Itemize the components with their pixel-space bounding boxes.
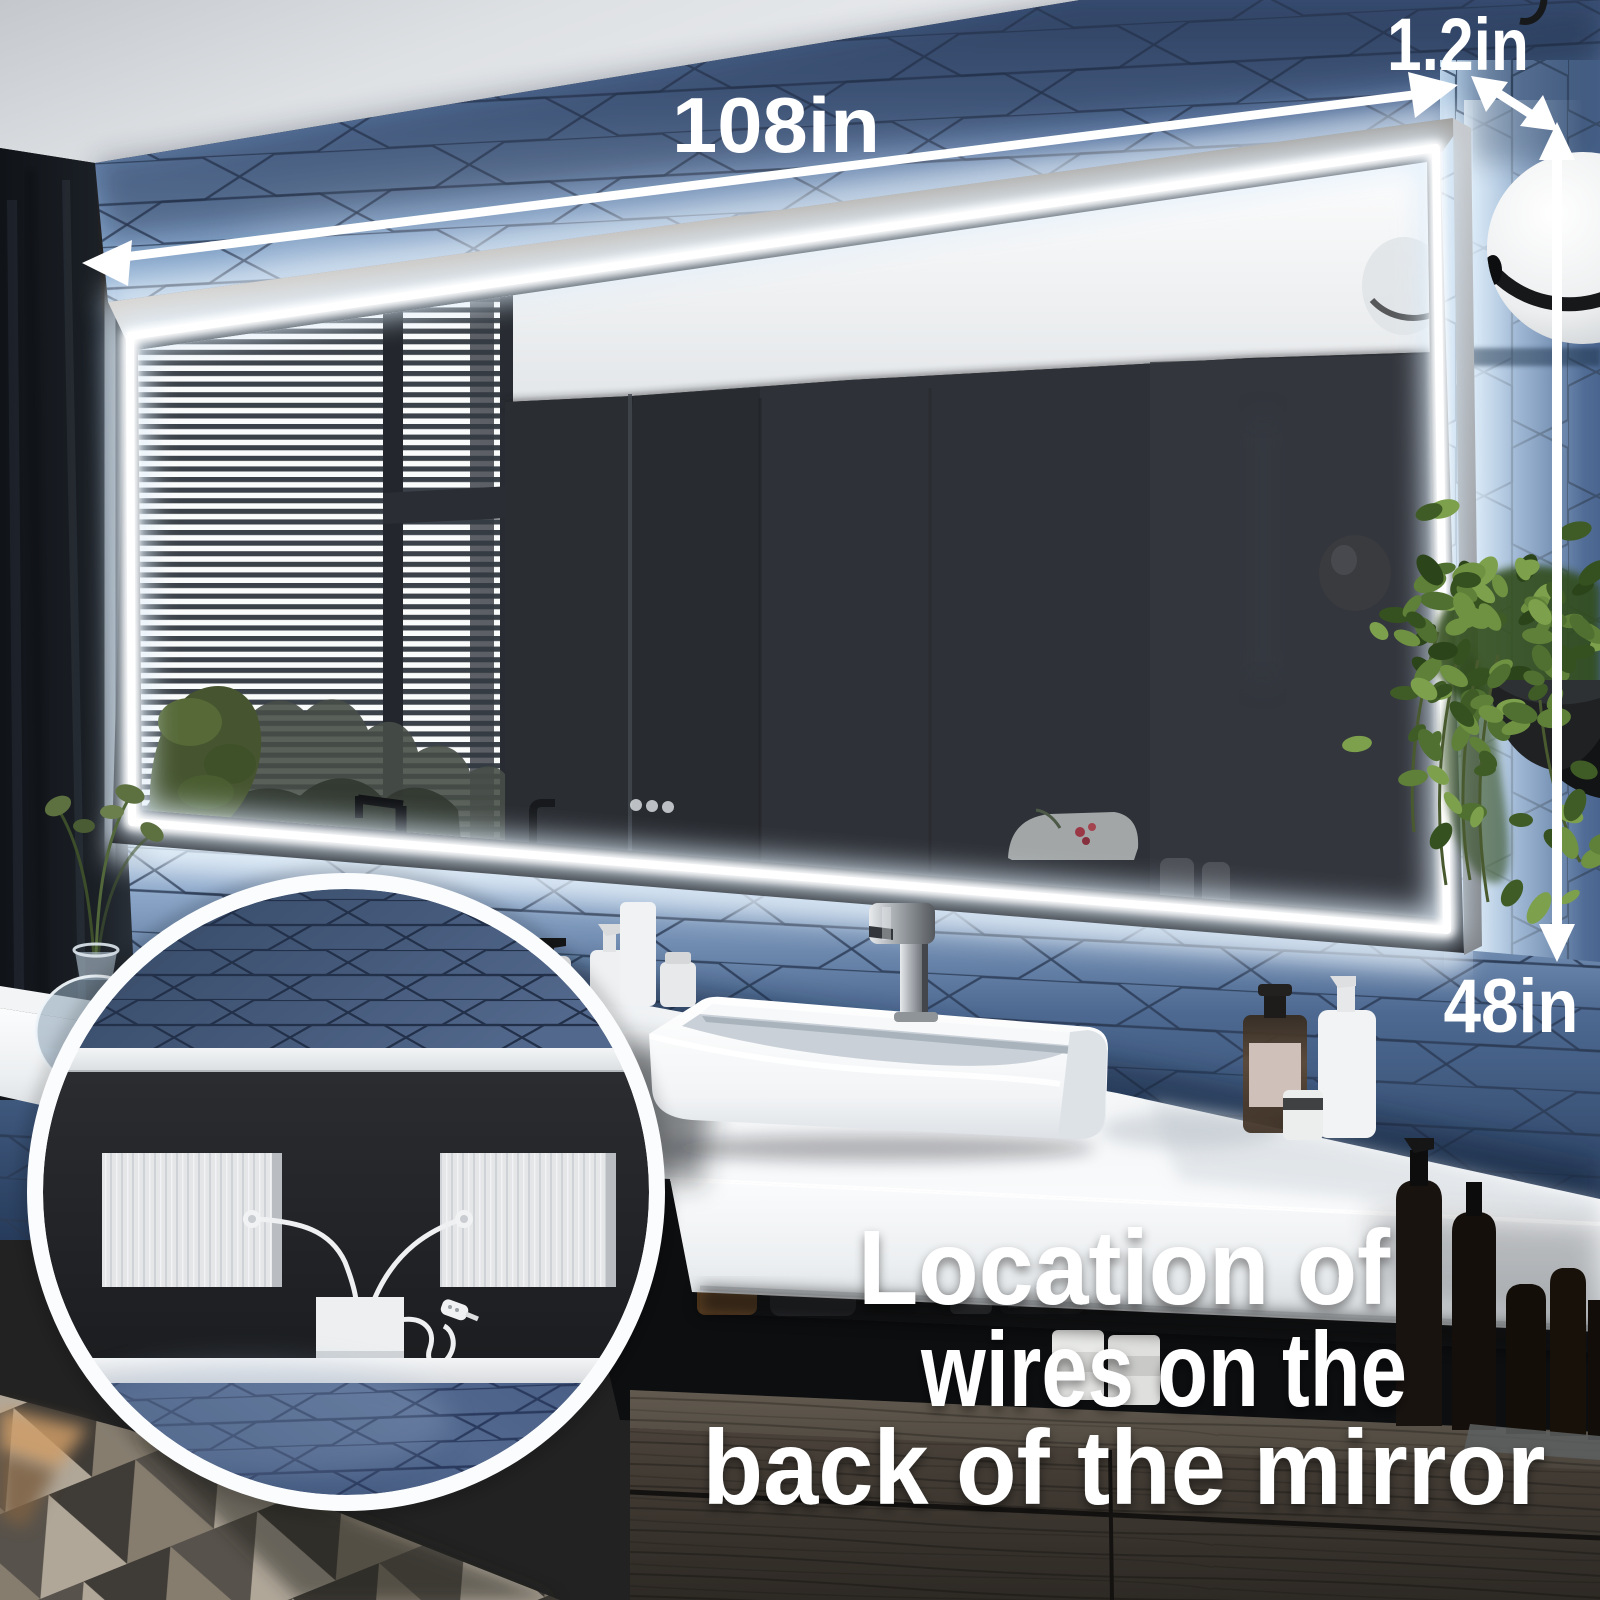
svg-text:1.2in: 1.2in xyxy=(1387,3,1529,86)
svg-text:back of the mirror: back of the mirror xyxy=(703,1409,1546,1527)
svg-text:Location of: Location of xyxy=(858,1209,1391,1327)
svg-text:48in: 48in xyxy=(1444,964,1579,1049)
svg-text:108in: 108in xyxy=(672,81,880,169)
